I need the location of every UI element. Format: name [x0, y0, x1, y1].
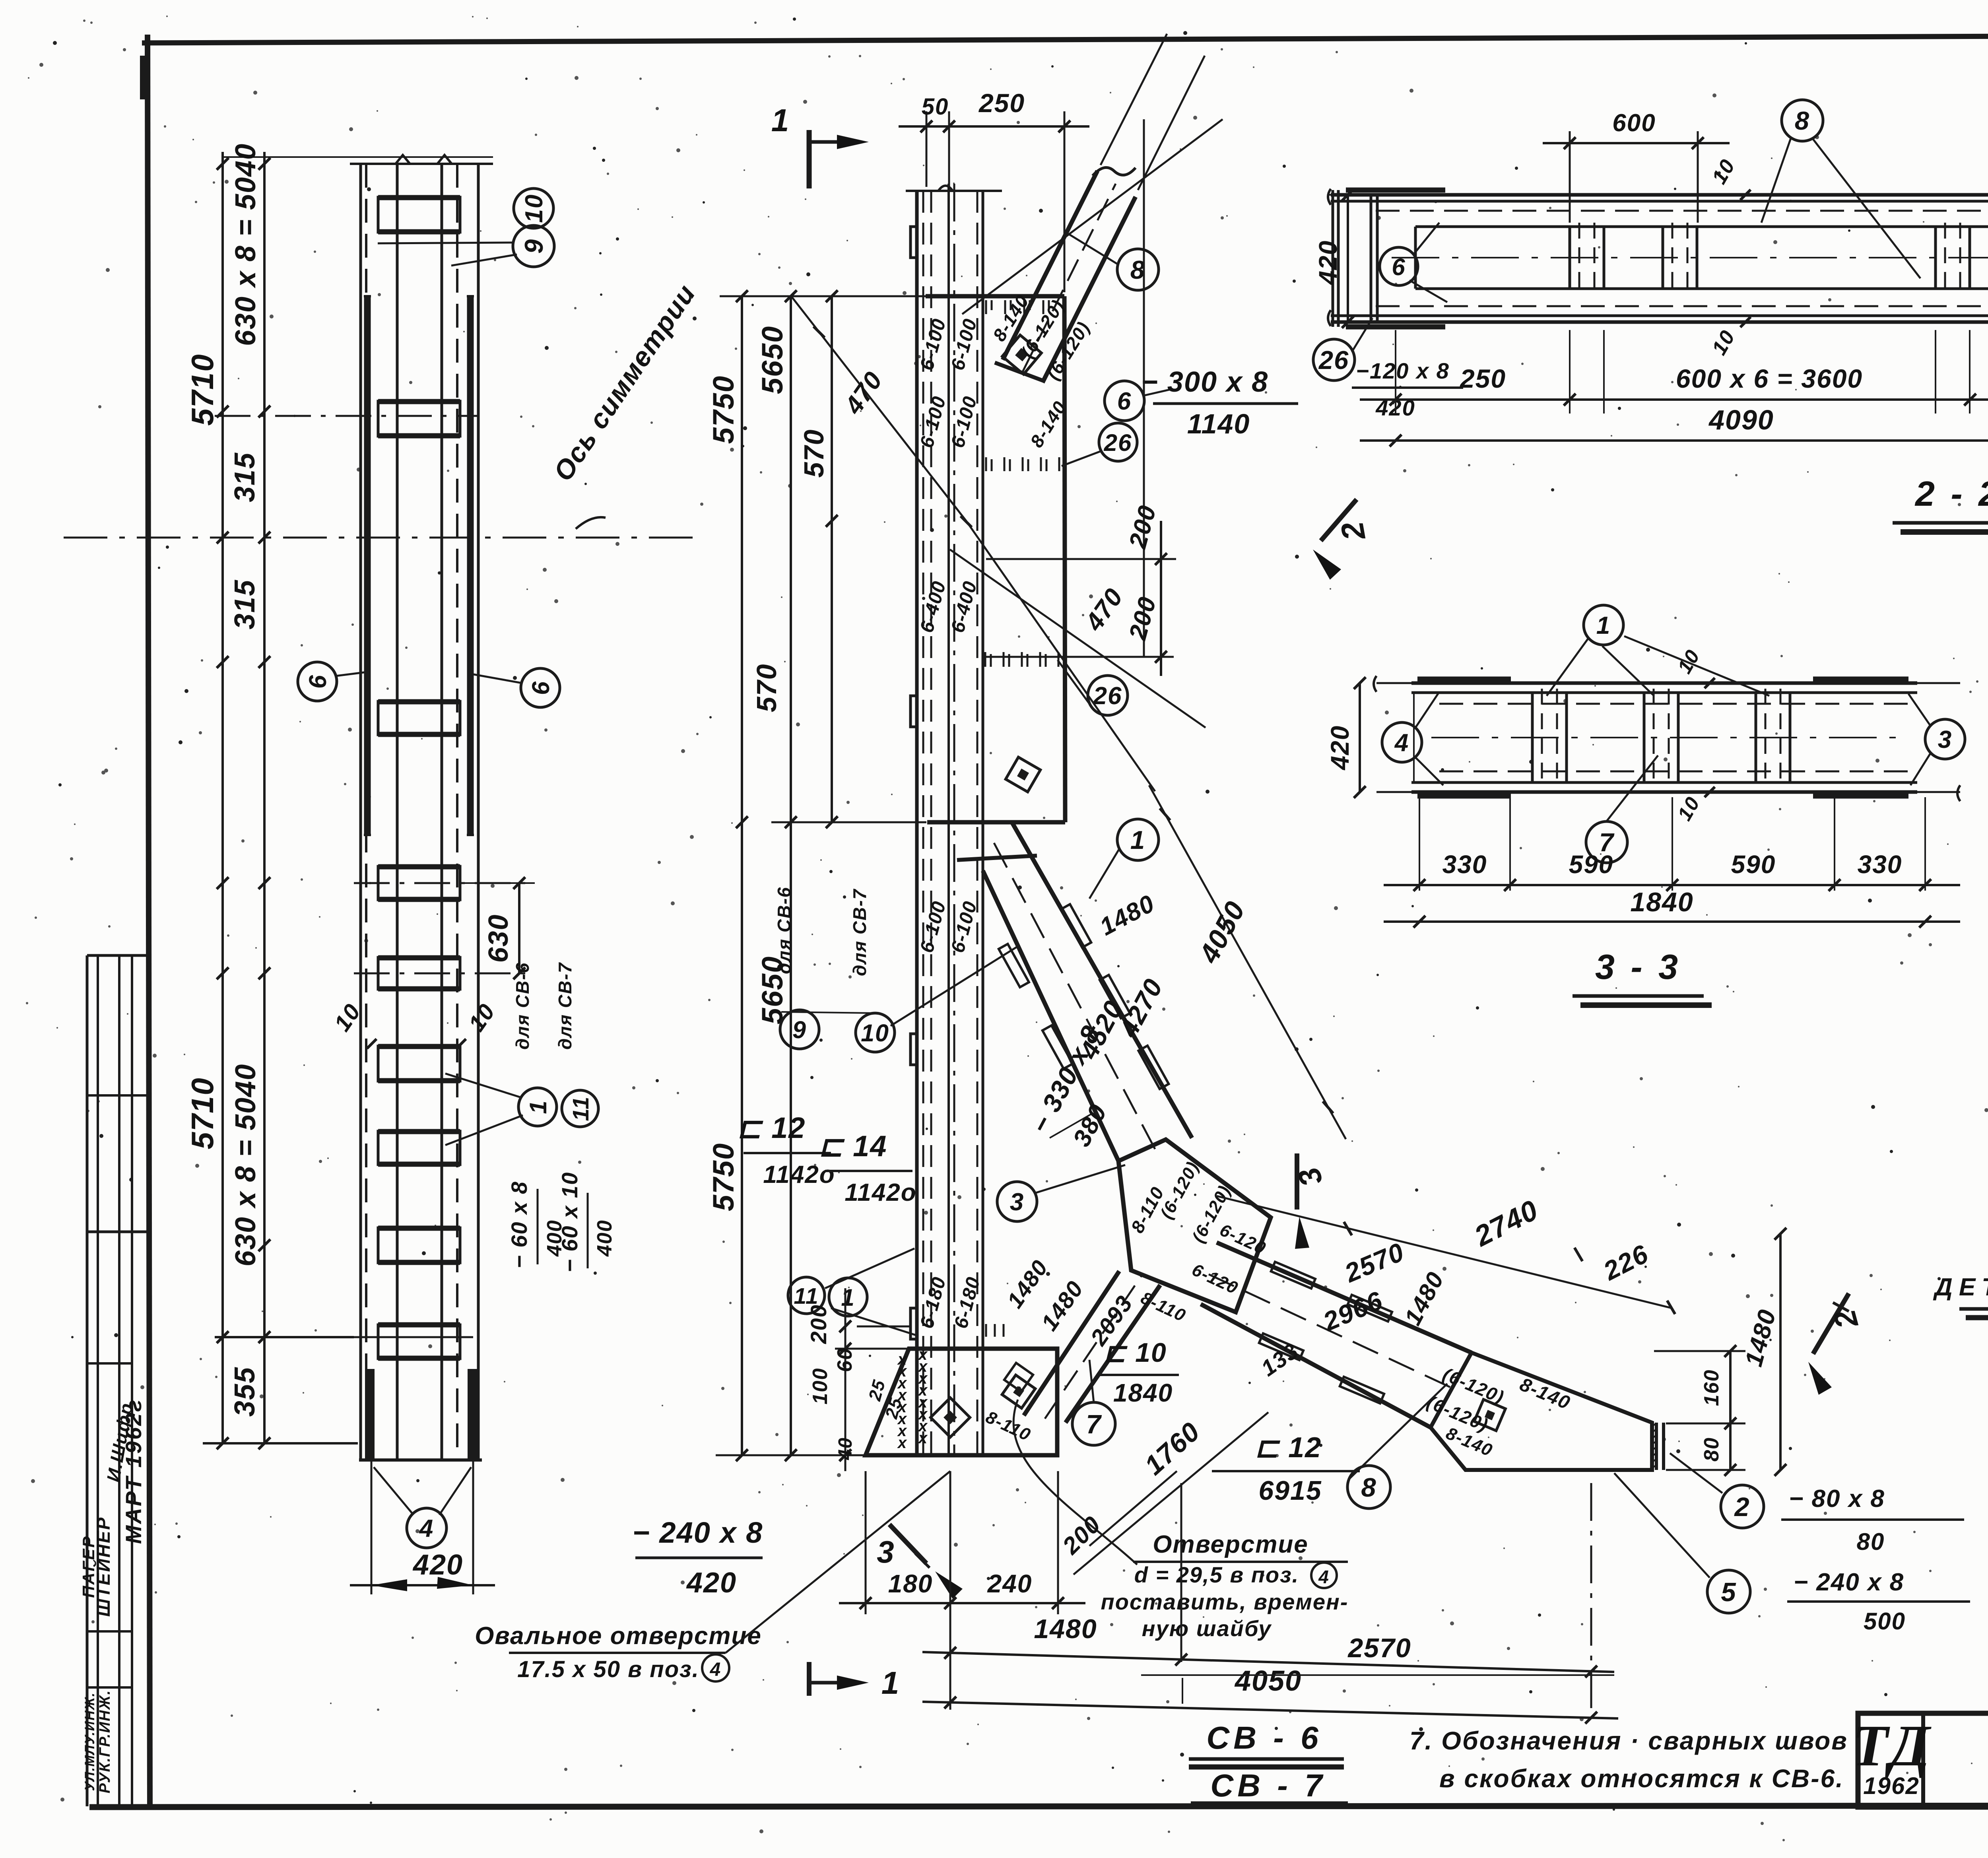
svg-text:− 240 х 8: − 240 х 8	[633, 1516, 763, 1549]
svg-text:250: 250	[1459, 364, 1506, 393]
svg-text:570: 570	[798, 429, 829, 478]
svg-text:Овальное отверстие: Овальное отверстие	[475, 1622, 762, 1650]
svg-text:630: 630	[483, 914, 514, 963]
svg-text:590: 590	[1731, 850, 1776, 879]
svg-text:6: 6	[527, 681, 554, 695]
svg-text:400: 400	[593, 1219, 616, 1257]
svg-text:420: 420	[1314, 240, 1342, 286]
svg-text:80: 80	[1857, 1528, 1885, 1555]
svg-text:2: 2	[1734, 1492, 1750, 1522]
svg-text:ДЕТАЛЬ РЕЗКИ ПОЗИЦИИ 8: ДЕТАЛЬ РЕЗКИ ПОЗИЦИИ 8	[1933, 1274, 1988, 1301]
svg-text:500: 500	[1864, 1608, 1906, 1635]
svg-text:4: 4	[419, 1515, 434, 1542]
svg-text:5: 5	[1721, 1577, 1736, 1607]
svg-text:9: 9	[792, 1016, 807, 1043]
svg-text:10: 10	[520, 194, 548, 223]
svg-text:330: 330	[1858, 850, 1903, 879]
svg-text:1: 1	[881, 1665, 900, 1701]
svg-text:6: 6	[1117, 388, 1132, 415]
svg-text:⊏ 12: ⊏ 12	[1255, 1432, 1322, 1464]
svg-text:11: 11	[568, 1096, 594, 1121]
svg-text:80: 80	[1700, 1437, 1723, 1462]
svg-text:160: 160	[1700, 1369, 1723, 1406]
svg-text:− 80 х 8: − 80 х 8	[1789, 1485, 1885, 1512]
svg-text:100: 100	[809, 1368, 832, 1405]
svg-text:1142о: 1142о	[845, 1179, 916, 1206]
svg-text:⊏ 12: ⊏ 12	[737, 1111, 806, 1144]
svg-text:355: 355	[229, 1367, 261, 1417]
svg-text:1140: 1140	[1187, 408, 1250, 439]
svg-text:240: 240	[987, 1569, 1033, 1598]
svg-text:1: 1	[525, 1100, 551, 1114]
svg-text:СВ - 7: СВ - 7	[1210, 1768, 1326, 1803]
svg-text:поставить, времен-: поставить, времен-	[1101, 1589, 1349, 1614]
svg-text:600 х 6 = 3600: 600 х 6 = 3600	[1676, 364, 1863, 393]
svg-text:ТД: ТД	[1852, 1713, 1932, 1778]
svg-text:590: 590	[1569, 850, 1614, 879]
svg-text:1: 1	[1130, 825, 1145, 854]
svg-text:4: 4	[1318, 1567, 1330, 1587]
svg-text:8: 8	[1795, 106, 1810, 135]
svg-text:570: 570	[751, 664, 782, 713]
svg-text:1480: 1480	[1034, 1614, 1097, 1644]
svg-text:5710: 5710	[185, 353, 220, 426]
svg-text:1962: 1962	[1863, 1773, 1919, 1799]
svg-text:3: 3	[877, 1534, 895, 1569]
svg-text:3 - 3: 3 - 3	[1595, 947, 1681, 986]
svg-text:СВ - 6: СВ - 6	[1206, 1720, 1322, 1755]
svg-text:6: 6	[1392, 254, 1406, 280]
svg-text:3: 3	[1010, 1188, 1024, 1216]
svg-text:630 x 8 = 5040: 630 x 8 = 5040	[230, 143, 262, 346]
svg-text:x: x	[897, 1434, 907, 1452]
svg-text:1840: 1840	[1113, 1378, 1173, 1407]
svg-text:420: 420	[1326, 725, 1354, 771]
svg-text:630 x 8 = 5040: 630 x 8 = 5040	[230, 1064, 262, 1266]
svg-text:4050: 4050	[1234, 1665, 1302, 1697]
svg-text:для СВ-6: для СВ-6	[512, 962, 533, 1050]
svg-text:1: 1	[1596, 612, 1611, 639]
svg-text:315: 315	[229, 579, 261, 629]
svg-text:⊏ 10: ⊏ 10	[1103, 1338, 1167, 1368]
svg-text:26: 26	[1318, 346, 1349, 375]
svg-text:УЛ.МЛУ.ИНЖ.: УЛ.МЛУ.ИНЖ.	[82, 1692, 97, 1791]
svg-text:ПАГЕР: ПАГЕР	[79, 1535, 98, 1598]
svg-text:17.5 х 50 в поз.: 17.5 х 50 в поз.	[517, 1656, 699, 1682]
svg-text:26: 26	[1104, 429, 1132, 456]
svg-text:50: 50	[922, 94, 949, 120]
svg-text:250: 250	[978, 88, 1025, 118]
svg-text:1: 1	[771, 103, 790, 138]
svg-text:⊏ 14: ⊏ 14	[819, 1130, 887, 1163]
svg-text:− 60 х 8: − 60 х 8	[507, 1181, 532, 1268]
svg-text:4090: 4090	[1708, 404, 1774, 435]
svg-text:26: 26	[1093, 682, 1122, 710]
svg-text:420: 420	[412, 1549, 463, 1581]
svg-text:420: 420	[686, 1567, 737, 1599]
svg-text:2570: 2570	[1347, 1633, 1411, 1663]
svg-text:7: 7	[1086, 1410, 1102, 1439]
svg-text:1142о: 1142о	[763, 1161, 835, 1188]
svg-text:5650: 5650	[756, 326, 789, 394]
svg-text:−120 х 8: −120 х 8	[1356, 358, 1450, 383]
svg-text:10: 10	[861, 1019, 889, 1046]
svg-text:4: 4	[710, 1659, 722, 1680]
svg-text:60: 60	[833, 1347, 856, 1372]
svg-text:4: 4	[1394, 729, 1409, 757]
svg-text:1840: 1840	[1630, 887, 1693, 917]
svg-text:для СВ-6: для СВ-6	[774, 887, 794, 974]
svg-text:в скобках относятся к СВ-6.: в скобках относятся к СВ-6.	[1439, 1764, 1844, 1793]
svg-text:40: 40	[835, 1437, 856, 1460]
svg-text:для СВ-7: для СВ-7	[849, 888, 870, 976]
svg-text:6: 6	[304, 674, 331, 689]
svg-text:− 60 х 10: − 60 х 10	[557, 1172, 582, 1272]
svg-text:600: 600	[1612, 109, 1656, 137]
svg-text:9: 9	[519, 239, 548, 254]
svg-text:315: 315	[229, 452, 261, 502]
svg-text:для СВ-7: для СВ-7	[555, 962, 575, 1050]
svg-text:РУК.ГР.ИНЖ.: РУК.ГР.ИНЖ.	[97, 1690, 113, 1794]
svg-text:5750: 5750	[707, 1143, 740, 1211]
svg-text:ную шайбу: ную шайбу	[1142, 1616, 1272, 1641]
svg-text:7. Обозначения · сварных швов: 7. Обозначения · сварных швов	[1409, 1726, 1848, 1755]
svg-text:5710: 5710	[185, 1077, 220, 1149]
svg-text:3: 3	[1938, 726, 1952, 753]
svg-text:2 - 2: 2 - 2	[1914, 474, 1988, 513]
svg-text:− 240 х 8: − 240 х 8	[1794, 1569, 1904, 1596]
svg-text:Отверстие: Отверстие	[1153, 1531, 1309, 1558]
svg-text:330: 330	[1442, 850, 1487, 879]
svg-text:x: x	[918, 1429, 928, 1447]
svg-text:8: 8	[1361, 1473, 1376, 1503]
svg-text:d = 29,5 в поз.: d = 29,5 в поз.	[1134, 1562, 1299, 1587]
svg-text:− 300 х 8: − 300 х 8	[1141, 366, 1268, 398]
svg-text:180: 180	[888, 1569, 933, 1598]
svg-text:200: 200	[806, 1304, 831, 1344]
svg-text:5750: 5750	[707, 375, 740, 444]
svg-text:6915: 6915	[1258, 1476, 1322, 1506]
svg-text:1: 1	[841, 1284, 855, 1311]
